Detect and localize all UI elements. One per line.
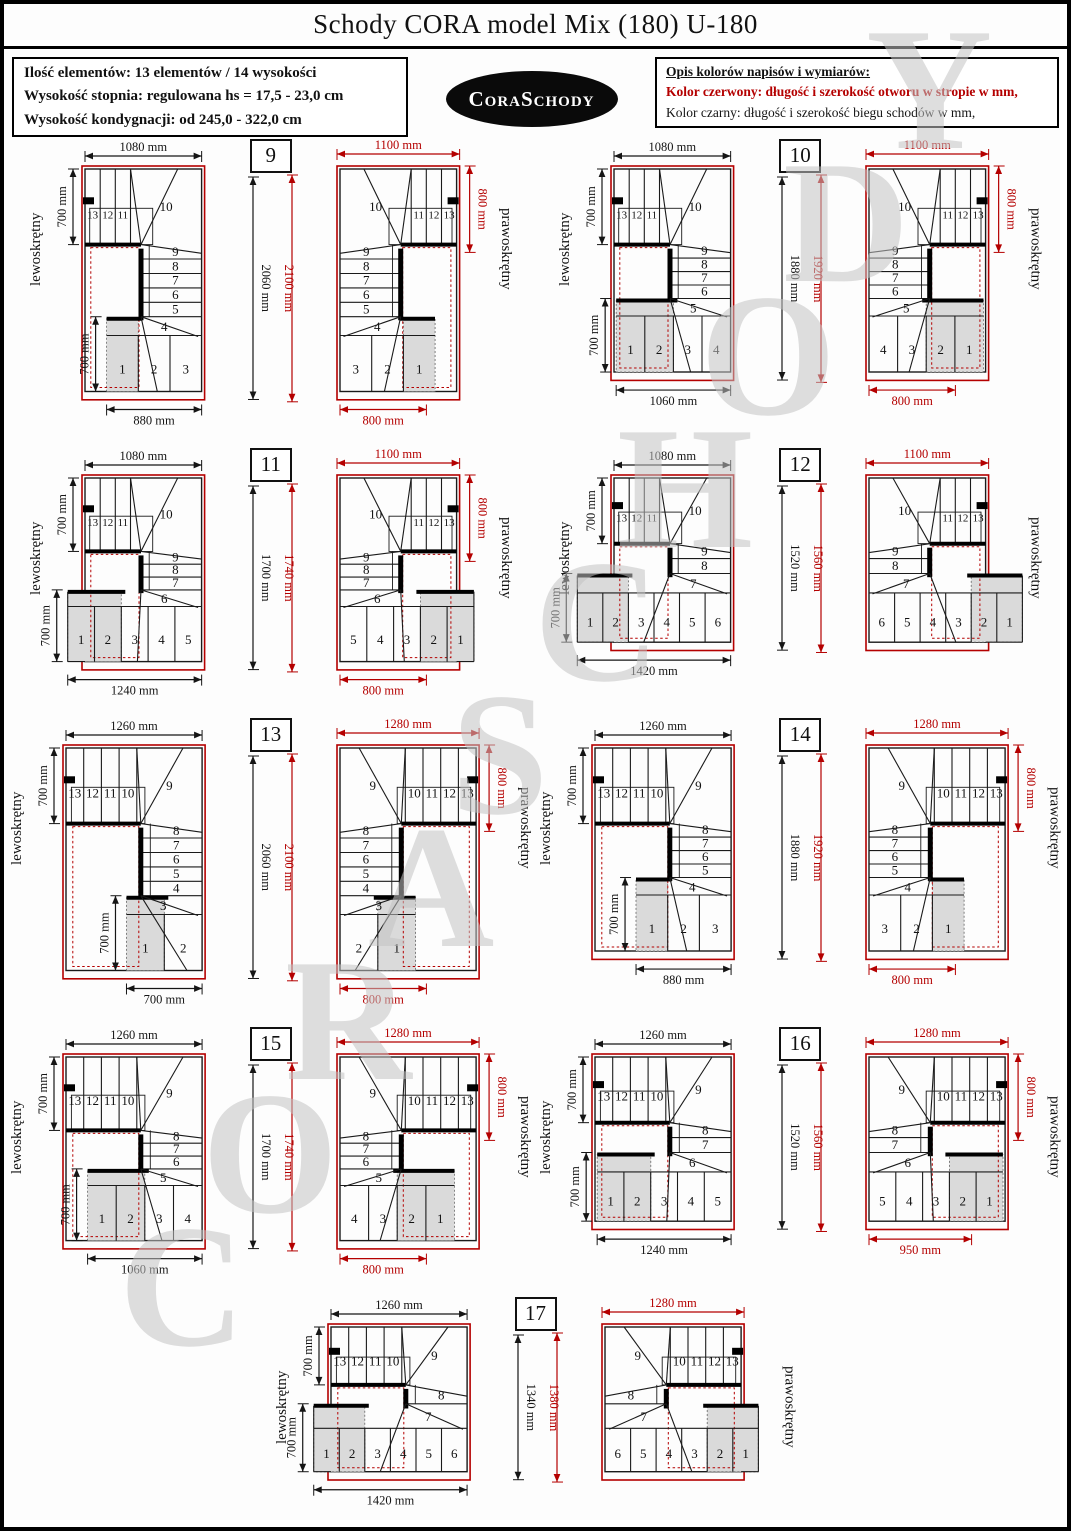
stair-diagram-left-13: 131211109876543121260 mm700 mm700 mm700 … <box>26 718 242 1025</box>
pair-number-box: 11 <box>250 448 292 482</box>
pair-center-12: 121520 mm1560 mm <box>771 448 829 664</box>
svg-text:2: 2 <box>613 614 620 629</box>
dim-label: 700 mm <box>607 893 621 935</box>
svg-text:2: 2 <box>634 1193 641 1208</box>
dim-label: 2100 mm <box>282 843 296 891</box>
svg-text:4: 4 <box>184 1211 191 1226</box>
pair-center-15: 151700 mm1740 mm <box>242 1027 300 1263</box>
pair-center-17: 171340 mm1380 mm <box>507 1297 565 1494</box>
stair-pair-14: lewoskrętny131211109876541231260 mm700 m… <box>538 718 1062 1005</box>
svg-text:11: 11 <box>413 517 424 529</box>
svg-text:4: 4 <box>880 342 887 357</box>
svg-text:3: 3 <box>956 614 963 629</box>
dim-label: 800 mm <box>495 1076 509 1118</box>
svg-text:10: 10 <box>159 506 172 521</box>
svg-text:8: 8 <box>173 823 180 838</box>
legend-box: Opis kolorów napisów i wymiarów: Kolor c… <box>655 57 1059 128</box>
svg-text:9: 9 <box>363 244 370 259</box>
pair-number-box: 9 <box>250 139 292 173</box>
svg-text:4: 4 <box>664 614 671 629</box>
svg-text:7: 7 <box>425 1409 432 1424</box>
diagram-row: lewoskrętny131211109871234561260 mm700 m… <box>4 1297 1067 1526</box>
diagram-row: lewoskrętny131211109876543121260 mm700 m… <box>4 718 1067 1025</box>
dim-label: 1700 mm <box>259 554 273 602</box>
dim-label: 880 mm <box>133 413 175 427</box>
svg-text:3: 3 <box>638 614 645 629</box>
stair-diagram-right-10: 131211109876512341100 mm800 mm800 mm <box>829 139 1026 426</box>
svg-text:8: 8 <box>702 1122 709 1137</box>
right-turn-label: prawoskrętny <box>497 139 514 359</box>
right-turn-label: prawoskrętny <box>1045 718 1062 938</box>
dim-label: 700 mm <box>77 333 91 375</box>
svg-text:4: 4 <box>665 1446 672 1461</box>
svg-text:4: 4 <box>689 879 696 894</box>
svg-text:3: 3 <box>712 921 719 936</box>
pair-center-14: 141880 mm1920 mm <box>771 718 829 973</box>
svg-text:6: 6 <box>161 591 168 606</box>
left-turn-label: lewoskrętny <box>274 1297 291 1517</box>
dim-label: 700 mm <box>143 992 185 1006</box>
svg-text:3: 3 <box>661 1193 668 1208</box>
page-title: Schody CORA model Mix (180) U-180 <box>4 4 1067 49</box>
stair-pair-16: lewoskrętny131211109876123451260 mm700 m… <box>538 1027 1062 1275</box>
dim-label: 1420 mm <box>366 1493 414 1507</box>
svg-text:4: 4 <box>161 319 168 334</box>
right-turn-label: prawoskrętny <box>516 1027 533 1247</box>
stair-diagram-right-12: 131211109871234561100 mm <box>829 448 1026 696</box>
dim-label: 700 mm <box>565 1069 579 1111</box>
dim-label: 700 mm <box>58 1184 72 1226</box>
dim-label: 1100 mm <box>904 447 951 461</box>
svg-text:2: 2 <box>180 940 187 955</box>
svg-text:6: 6 <box>451 1446 458 1461</box>
stair-diagram-left-11: 131211109876123451080 mm700 mm700 mm1240… <box>45 448 242 716</box>
dim-label: 1240 mm <box>111 683 159 697</box>
dim-label: 800 mm <box>892 973 934 987</box>
svg-text:6: 6 <box>374 591 381 606</box>
pair-center-10: 101880 mm1920 mm <box>771 139 829 394</box>
svg-text:4: 4 <box>399 1446 406 1461</box>
dim-label: 2060 mm <box>259 264 273 312</box>
dim-label: 1240 mm <box>641 1243 689 1257</box>
dim-label: 1080 mm <box>119 140 167 154</box>
svg-text:3: 3 <box>404 632 411 647</box>
right-turn-label: prawoskrętny <box>516 718 533 938</box>
dim-label: 800 mm <box>362 992 404 1006</box>
svg-text:13: 13 <box>973 512 985 524</box>
svg-text:10: 10 <box>369 506 382 521</box>
svg-text:2: 2 <box>348 1446 355 1461</box>
stair-diagram-left-16: 131211109876123451260 mm700 mm700 mm1240… <box>555 1027 771 1275</box>
stair-pair-9: lewoskrętny131211109876541231080 mm700 m… <box>28 139 514 446</box>
stair-diagram-left-12: 131211109871234561080 mm700 mm700 mm1420… <box>574 448 771 696</box>
svg-text:12: 12 <box>102 517 113 529</box>
svg-text:12: 12 <box>958 209 969 221</box>
dim-label: 1280 mm <box>649 1296 697 1310</box>
svg-text:11: 11 <box>368 1353 381 1368</box>
svg-text:7: 7 <box>640 1409 647 1424</box>
svg-text:3: 3 <box>375 898 382 913</box>
dim-label: 800 mm <box>475 497 489 539</box>
svg-text:2: 2 <box>430 632 437 647</box>
stair-pair-17: lewoskrętny131211109871234561260 mm700 m… <box>274 1297 798 1526</box>
svg-text:5: 5 <box>715 1193 722 1208</box>
pair-number-box: 17 <box>515 1297 557 1331</box>
svg-text:2: 2 <box>716 1446 723 1461</box>
dim-label: 2100 mm <box>282 264 296 312</box>
svg-text:2: 2 <box>981 614 988 629</box>
svg-text:1: 1 <box>457 632 464 647</box>
svg-text:7: 7 <box>690 576 697 591</box>
right-turn-label: prawoskrętny <box>497 448 514 668</box>
dim-label: 700 mm <box>587 314 601 356</box>
svg-text:8: 8 <box>363 258 370 273</box>
dim-label: 700 mm <box>36 1073 50 1115</box>
pair-number-box: 15 <box>250 1027 292 1061</box>
logo-text: CoraSchody <box>468 87 594 112</box>
svg-text:4: 4 <box>906 1193 913 1208</box>
svg-text:2: 2 <box>938 342 945 357</box>
left-turn-label: lewoskrętny <box>557 448 574 668</box>
svg-text:2: 2 <box>127 1211 134 1226</box>
dim-label: 1920 mm <box>811 834 825 882</box>
svg-text:9: 9 <box>166 778 173 793</box>
right-turn-label: prawoskrętny <box>781 1297 798 1517</box>
dim-label: 1280 mm <box>913 1026 961 1040</box>
svg-text:8: 8 <box>172 258 179 273</box>
svg-text:10: 10 <box>369 199 382 214</box>
pair-center-11: 111700 mm1740 mm <box>242 448 300 684</box>
dim-label: 1060 mm <box>650 394 698 408</box>
dim-label: 700 mm <box>568 1166 582 1208</box>
svg-text:9: 9 <box>892 543 899 558</box>
svg-text:4: 4 <box>713 342 720 357</box>
svg-text:13: 13 <box>87 209 99 221</box>
pair-center-16: 161520 mm1560 mm <box>771 1027 829 1243</box>
stair-diagram-right-17: 131211109871234561280 mm <box>565 1297 781 1526</box>
dim-label: 1080 mm <box>649 140 697 154</box>
header-row: Ilość elementów: 13 elementów / 14 wysok… <box>4 49 1067 137</box>
pair-number-box: 14 <box>779 718 821 752</box>
left-turn-label: lewoskrętny <box>28 448 45 668</box>
pair-number-box: 13 <box>250 718 292 752</box>
stair-diagram-right-14: 131211109876541231280 mm800 mm800 mm <box>829 718 1045 1005</box>
dim-label: 1420 mm <box>630 664 678 678</box>
svg-text:11: 11 <box>943 512 954 524</box>
svg-text:7: 7 <box>173 837 180 852</box>
stair-pair-13: lewoskrętny131211109876543121260 mm700 m… <box>9 718 533 1025</box>
svg-text:13: 13 <box>616 512 628 524</box>
left-turn-label: lewoskrętny <box>538 718 555 938</box>
svg-text:8: 8 <box>362 823 369 838</box>
dim-label: 1920 mm <box>811 255 825 303</box>
svg-text:1: 1 <box>628 342 635 357</box>
svg-text:11: 11 <box>690 1353 703 1368</box>
svg-text:6: 6 <box>689 1155 696 1170</box>
dim-label: 700 mm <box>584 186 598 228</box>
svg-text:4: 4 <box>377 632 384 647</box>
svg-text:10: 10 <box>898 199 911 214</box>
pair-number-box: 16 <box>779 1027 821 1061</box>
stair-diagrams-area: lewoskrętny131211109876541231080 mm700 m… <box>4 139 1067 1526</box>
svg-text:9: 9 <box>166 1085 173 1100</box>
svg-text:11: 11 <box>943 209 954 221</box>
svg-text:3: 3 <box>374 1446 381 1461</box>
dim-label: 1880 mm <box>788 254 802 302</box>
pair-center-13: 132060 mm2100 mm <box>242 718 300 993</box>
svg-text:12: 12 <box>102 209 113 221</box>
svg-text:13: 13 <box>616 209 628 221</box>
svg-text:3: 3 <box>691 1446 698 1461</box>
stair-diagram-right-11: 131211109876123451100 mm800 mm800 mm <box>300 448 497 716</box>
svg-text:1: 1 <box>987 1193 994 1208</box>
svg-text:3: 3 <box>131 632 138 647</box>
dim-label: 700 mm <box>36 765 50 807</box>
svg-text:13: 13 <box>333 1353 346 1368</box>
svg-text:7: 7 <box>172 272 179 287</box>
diagram-row: lewoskrętny131211109876512341260 mm700 m… <box>4 1027 1067 1295</box>
dim-label: 800 mm <box>362 413 404 427</box>
svg-text:2: 2 <box>355 940 362 955</box>
svg-text:3: 3 <box>352 361 359 376</box>
coraschody-logo: CoraSchody <box>446 71 618 127</box>
svg-text:8: 8 <box>701 558 708 573</box>
svg-text:5: 5 <box>173 866 180 881</box>
left-turn-label: lewoskrętny <box>538 1027 555 1247</box>
svg-text:12: 12 <box>958 512 969 524</box>
svg-text:5: 5 <box>375 1170 382 1185</box>
svg-text:6: 6 <box>614 1446 621 1461</box>
info-line-elements: Ilość elementów: 13 elementów / 14 wysok… <box>24 62 396 85</box>
stair-diagram-left-10: 131211109876512341080 mm700 mm700 mm1060… <box>574 139 771 426</box>
stair-diagram-left-15: 131211109876512341260 mm700 mm700 mm1060… <box>26 1027 242 1295</box>
right-turn-label: prawoskrętny <box>1026 448 1043 668</box>
stair-diagram-right-13: 131211109876543121280 mm800 mm800 mm <box>300 718 516 1025</box>
svg-text:8: 8 <box>892 558 899 573</box>
dim-label: 1740 mm <box>282 1133 296 1181</box>
dim-label: 1260 mm <box>110 1028 158 1042</box>
svg-text:4: 4 <box>158 632 165 647</box>
dim-label: 1880 mm <box>788 833 802 881</box>
svg-text:1: 1 <box>608 1193 615 1208</box>
svg-text:6: 6 <box>172 287 179 302</box>
svg-text:3: 3 <box>160 898 167 913</box>
svg-text:10: 10 <box>689 503 702 518</box>
svg-text:11: 11 <box>647 512 658 524</box>
right-turn-label: prawoskrętny <box>1045 1027 1062 1247</box>
pair-number-box: 10 <box>779 139 821 173</box>
svg-text:1: 1 <box>742 1446 749 1461</box>
svg-text:10: 10 <box>898 503 911 518</box>
svg-text:12: 12 <box>428 517 439 529</box>
svg-text:13: 13 <box>87 517 99 529</box>
dim-label: 1740 mm <box>282 554 296 602</box>
svg-text:7: 7 <box>903 576 910 591</box>
page: Schody CORA model Mix (180) U-180 Ilość … <box>0 0 1071 1531</box>
svg-text:9: 9 <box>431 1348 438 1363</box>
legend-heading: Opis kolorów napisów i wymiarów: <box>666 62 1048 82</box>
svg-text:6: 6 <box>715 614 722 629</box>
stair-diagram-left-9: 131211109876541231080 mm700 mm700 mm880 … <box>45 139 242 446</box>
svg-text:4: 4 <box>173 880 180 895</box>
svg-text:6: 6 <box>173 851 180 866</box>
stair-diagram-right-16: 131211109876123451280 mm800 mm950 mm <box>829 1027 1045 1275</box>
dim-label: 1080 mm <box>119 449 167 463</box>
legend-black-line: Kolor czarny: długość i szerokość biegu … <box>666 103 1048 123</box>
svg-text:5: 5 <box>879 1193 886 1208</box>
svg-text:6: 6 <box>363 287 370 302</box>
dim-label: 800 mm <box>362 1262 404 1276</box>
stair-diagram-right-9: 131211109876541231100 mm800 mm800 mm <box>300 139 497 446</box>
svg-text:9: 9 <box>899 1082 906 1097</box>
dim-label: 1260 mm <box>375 1298 423 1312</box>
svg-text:3: 3 <box>182 361 189 376</box>
stair-diagram-left-14: 131211109876541231260 mm700 mm700 mm880 … <box>555 718 771 1005</box>
info-box: Ilość elementów: 13 elementów / 14 wysok… <box>12 57 408 137</box>
dim-label: 700 mm <box>565 765 579 807</box>
info-line-storey-height: Wysokość kondygnacji: od 245,0 - 322,0 c… <box>24 109 396 132</box>
svg-text:4: 4 <box>374 319 381 334</box>
svg-text:13: 13 <box>725 1353 738 1368</box>
svg-text:5: 5 <box>160 1170 167 1185</box>
left-turn-label: lewoskrętny <box>9 718 26 938</box>
dim-label: 1700 mm <box>259 1133 273 1181</box>
svg-text:1: 1 <box>323 1446 330 1461</box>
legend-red-line: Kolor czerwony: długość i szerokość otwo… <box>666 82 1048 102</box>
svg-text:1: 1 <box>945 921 952 936</box>
dim-label: 1100 mm <box>374 447 421 461</box>
svg-text:9: 9 <box>695 778 702 793</box>
svg-text:6: 6 <box>362 1154 369 1169</box>
dim-label: 1520 mm <box>788 1123 802 1171</box>
dim-label: 1340 mm <box>524 1383 538 1431</box>
svg-text:1: 1 <box>587 614 594 629</box>
dim-label: 1060 mm <box>121 1262 169 1276</box>
stair-diagram-right-15: 131211109876512341280 mm800 mm800 mm <box>300 1027 516 1295</box>
svg-text:6: 6 <box>892 283 899 298</box>
svg-text:5: 5 <box>172 301 179 316</box>
svg-text:4: 4 <box>362 880 369 895</box>
svg-text:5: 5 <box>185 632 192 647</box>
svg-text:5: 5 <box>350 632 357 647</box>
svg-text:5: 5 <box>363 301 370 316</box>
svg-text:7: 7 <box>172 575 179 590</box>
dim-label: 1280 mm <box>384 1026 432 1040</box>
svg-text:5: 5 <box>362 866 369 881</box>
svg-text:5: 5 <box>690 300 697 315</box>
svg-text:11: 11 <box>117 209 128 221</box>
left-turn-label: lewoskrętny <box>9 1027 26 1247</box>
svg-text:5: 5 <box>702 862 709 877</box>
svg-text:12: 12 <box>708 1353 721 1368</box>
dim-label: 800 mm <box>362 683 404 697</box>
svg-text:9: 9 <box>369 1085 376 1100</box>
dim-label: 800 mm <box>1024 767 1038 809</box>
svg-text:10: 10 <box>672 1353 685 1368</box>
dim-label: 1380 mm <box>547 1383 561 1431</box>
svg-text:8: 8 <box>892 1122 899 1137</box>
stair-pair-12: lewoskrętny131211109871234561080 mm700 m… <box>557 448 1043 696</box>
svg-text:6: 6 <box>362 851 369 866</box>
dim-label: 1520 mm <box>788 544 802 592</box>
dim-label: 800 mm <box>1005 188 1019 230</box>
dim-label: 1280 mm <box>384 717 432 731</box>
svg-text:8: 8 <box>627 1387 634 1402</box>
svg-text:1: 1 <box>1007 614 1014 629</box>
dim-label: 1280 mm <box>913 717 961 731</box>
svg-text:5: 5 <box>640 1446 647 1461</box>
svg-text:1: 1 <box>966 342 973 357</box>
dim-label: 700 mm <box>301 1335 315 1377</box>
svg-text:9: 9 <box>899 778 906 793</box>
stair-pair-15: lewoskrętny131211109876512341260 mm700 m… <box>9 1027 533 1295</box>
info-line-step-height: Wysokość stopnia: regulowana hs = 17,5 -… <box>24 85 396 108</box>
svg-text:12: 12 <box>631 209 642 221</box>
svg-text:8: 8 <box>437 1387 444 1402</box>
dim-label: 2060 mm <box>259 843 273 891</box>
svg-text:2: 2 <box>960 1193 967 1208</box>
svg-text:9: 9 <box>695 1082 702 1097</box>
stair-pair-11: lewoskrętny131211109876123451080 mm700 m… <box>28 448 514 716</box>
svg-text:7: 7 <box>362 837 369 852</box>
svg-text:6: 6 <box>905 1155 912 1170</box>
svg-text:1: 1 <box>119 361 126 376</box>
svg-text:2: 2 <box>408 1211 415 1226</box>
left-turn-label: lewoskrętny <box>28 139 45 359</box>
dim-label: 1260 mm <box>639 719 687 733</box>
svg-text:4: 4 <box>351 1211 358 1226</box>
svg-text:9: 9 <box>701 543 708 558</box>
dim-label: 800 mm <box>495 767 509 809</box>
svg-text:7: 7 <box>702 1137 709 1152</box>
svg-text:5: 5 <box>892 862 899 877</box>
svg-text:11: 11 <box>647 209 658 221</box>
dim-label: 1100 mm <box>374 138 421 152</box>
svg-text:5: 5 <box>904 614 911 629</box>
svg-text:5: 5 <box>689 614 696 629</box>
dim-label: 880 mm <box>663 973 705 987</box>
dim-label: 800 mm <box>1024 1076 1038 1118</box>
svg-text:10: 10 <box>386 1353 399 1368</box>
svg-text:3: 3 <box>882 921 889 936</box>
svg-text:13: 13 <box>443 209 455 221</box>
svg-text:9: 9 <box>634 1348 641 1363</box>
svg-text:12: 12 <box>631 512 642 524</box>
svg-text:2: 2 <box>104 632 111 647</box>
svg-text:1: 1 <box>416 361 423 376</box>
svg-text:6: 6 <box>879 614 886 629</box>
dim-label: 1560 mm <box>811 544 825 592</box>
svg-text:7: 7 <box>892 1137 899 1152</box>
svg-text:13: 13 <box>443 517 455 529</box>
dim-label: 1560 mm <box>811 1123 825 1171</box>
pair-number-box: 12 <box>779 448 821 482</box>
dim-label: 1260 mm <box>639 1028 687 1042</box>
stair-pair-10: lewoskrętny131211109876512341080 mm700 m… <box>557 139 1043 426</box>
svg-text:1: 1 <box>437 1211 444 1226</box>
svg-text:12: 12 <box>351 1353 364 1368</box>
dim-label: 700 mm <box>97 912 111 954</box>
svg-text:12: 12 <box>428 209 439 221</box>
svg-text:4: 4 <box>930 614 937 629</box>
svg-text:9: 9 <box>369 778 376 793</box>
svg-text:11: 11 <box>117 517 128 529</box>
dim-label: 950 mm <box>900 1243 942 1257</box>
dim-label: 800 mm <box>892 394 934 408</box>
right-turn-label: prawoskrętny <box>1026 139 1043 359</box>
svg-text:5: 5 <box>425 1446 432 1461</box>
left-turn-label: lewoskrętny <box>557 139 574 359</box>
